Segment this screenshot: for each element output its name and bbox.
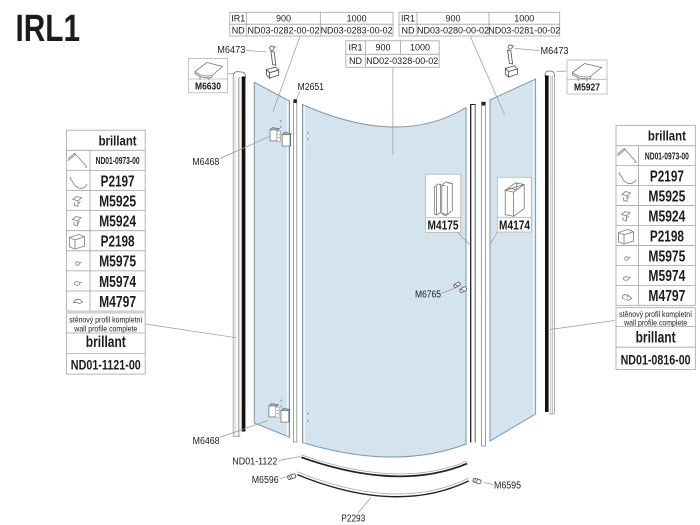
svg-text:M4174: M4174 xyxy=(499,218,530,232)
svg-text:brillant: brillant xyxy=(636,330,676,347)
svg-text:ND01-1121-00: ND01-1121-00 xyxy=(71,357,141,372)
svg-text:ND03-0283-00-02: ND03-0283-00-02 xyxy=(321,25,393,35)
svg-text:1000: 1000 xyxy=(410,43,430,53)
svg-text:IR1: IR1 xyxy=(231,14,245,24)
svg-text:ND02-0328-00-02: ND02-0328-00-02 xyxy=(366,56,438,66)
svg-text:ND01-0973-00: ND01-0973-00 xyxy=(645,151,689,162)
svg-text:M5925: M5925 xyxy=(648,188,685,205)
svg-text:IRL1: IRL1 xyxy=(16,8,81,50)
svg-text:M4175: M4175 xyxy=(428,218,459,232)
svg-text:ND01-1122: ND01-1122 xyxy=(232,457,277,468)
svg-text:M5924: M5924 xyxy=(648,208,685,225)
svg-text:ND03-0282-00-02: ND03-0282-00-02 xyxy=(247,25,319,35)
svg-text:brillant: brillant xyxy=(99,132,137,148)
svg-text:1000: 1000 xyxy=(347,14,367,24)
svg-text:M6630: M6630 xyxy=(195,80,221,92)
svg-text:ND01-0973-00: ND01-0973-00 xyxy=(96,156,140,167)
svg-text:M5924: M5924 xyxy=(99,214,136,231)
svg-text:M5925: M5925 xyxy=(99,193,136,210)
svg-text:900: 900 xyxy=(445,14,460,24)
svg-text:M6473: M6473 xyxy=(217,45,245,56)
svg-text:IR1: IR1 xyxy=(401,14,415,24)
svg-text:M5974: M5974 xyxy=(99,274,136,291)
svg-text:P2198: P2198 xyxy=(650,228,684,245)
svg-text:ND03-0280-00-02: ND03-0280-00-02 xyxy=(417,25,489,35)
svg-text:M6468: M6468 xyxy=(193,436,220,447)
svg-text:P2197: P2197 xyxy=(101,173,135,190)
svg-text:P2293: P2293 xyxy=(341,514,365,525)
svg-text:P2197: P2197 xyxy=(650,169,684,186)
svg-text:wall profile complete: wall profile complete xyxy=(73,323,137,333)
svg-text:1000: 1000 xyxy=(514,14,534,24)
svg-text:M4797: M4797 xyxy=(99,294,136,311)
svg-text:M5975: M5975 xyxy=(648,248,685,265)
svg-text:M5974: M5974 xyxy=(648,268,685,285)
svg-text:brillant: brillant xyxy=(648,128,686,144)
svg-text:ND: ND xyxy=(402,25,415,35)
svg-text:brillant: brillant xyxy=(86,334,126,351)
svg-text:900: 900 xyxy=(276,14,291,24)
svg-text:M4797: M4797 xyxy=(648,288,685,305)
svg-text:wall profile complete: wall profile complete xyxy=(623,318,687,328)
svg-text:900: 900 xyxy=(375,43,390,53)
svg-text:M6468: M6468 xyxy=(192,157,219,168)
svg-text:M6473: M6473 xyxy=(541,46,569,57)
svg-text:M6765: M6765 xyxy=(415,289,441,300)
svg-text:M5927: M5927 xyxy=(574,81,600,93)
svg-text:M6595: M6595 xyxy=(494,481,521,492)
svg-text:M6596: M6596 xyxy=(252,475,279,486)
svg-text:ND01-0816-00: ND01-0816-00 xyxy=(621,353,691,368)
svg-text:IR1: IR1 xyxy=(348,43,362,53)
svg-text:ND: ND xyxy=(349,56,362,66)
svg-text:ND: ND xyxy=(232,25,245,35)
svg-text:M5975: M5975 xyxy=(99,254,136,271)
svg-text:P2198: P2198 xyxy=(101,234,135,251)
svg-text:M2651: M2651 xyxy=(298,82,325,93)
svg-text:ND03-0281-00-02: ND03-0281-00-02 xyxy=(488,25,560,35)
